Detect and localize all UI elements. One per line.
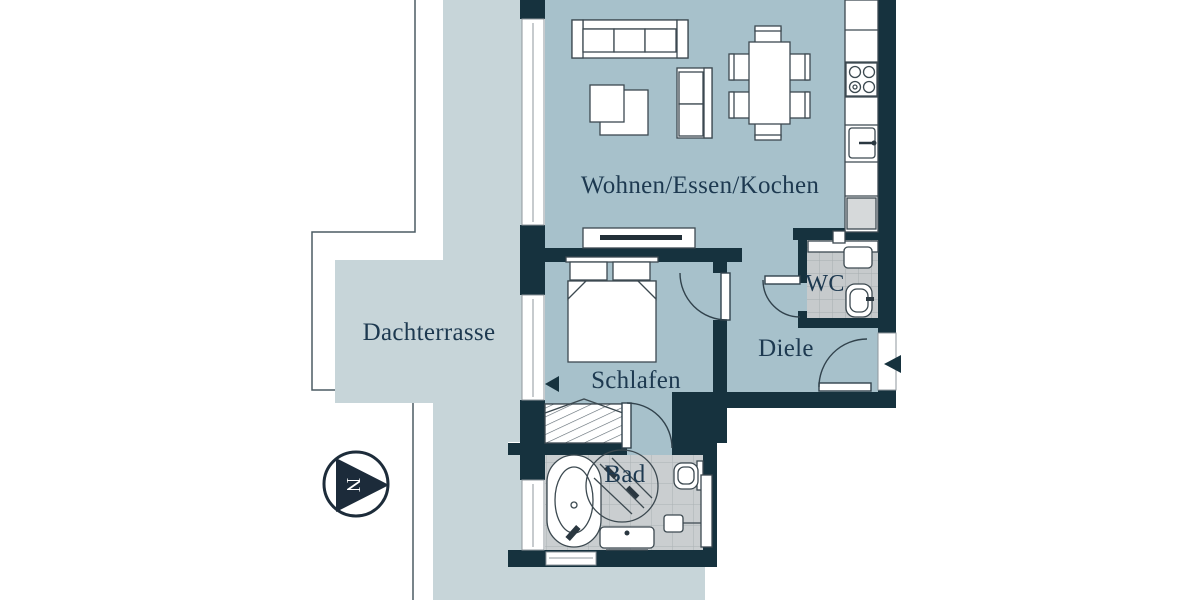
sofa-icon bbox=[572, 20, 688, 58]
kitchen-sink-icon bbox=[849, 128, 877, 158]
window bbox=[522, 480, 544, 550]
room-label-terrace: Dachterrasse bbox=[363, 318, 496, 348]
cooktop-icon bbox=[846, 63, 877, 96]
room-label-wc: WC bbox=[805, 269, 844, 299]
floorplan-canvas: N Wohnen/Essen/Kochen Dachterrasse Schla… bbox=[0, 0, 1200, 600]
sideboard-tv-icon bbox=[583, 228, 695, 248]
floorplan-drawing: N bbox=[0, 0, 1200, 600]
terrace-door-window bbox=[522, 295, 544, 400]
kitchen-counter bbox=[845, 0, 878, 232]
wardrobe-icon bbox=[545, 399, 623, 443]
room-label-living: Wohnen/Essen/Kochen bbox=[581, 171, 819, 201]
compass-north-label: N bbox=[342, 478, 364, 492]
window bbox=[546, 552, 596, 565]
room-label-hallway: Diele bbox=[758, 334, 814, 364]
wc-cabinet-icon bbox=[833, 231, 845, 243]
bath-door-gap bbox=[627, 443, 672, 455]
wc-sink-icon bbox=[844, 247, 872, 268]
wc-toilet-icon bbox=[846, 284, 874, 317]
vanity-icon bbox=[600, 527, 654, 550]
room-label-bathroom: Bad bbox=[604, 460, 645, 490]
room-label-bedroom: Schlafen bbox=[591, 366, 681, 396]
loveseat-icon bbox=[677, 68, 712, 138]
dishwasher-icon bbox=[847, 198, 876, 229]
window bbox=[522, 19, 544, 225]
passage-floor bbox=[740, 240, 798, 264]
toilet-icon bbox=[674, 461, 703, 490]
north-arrow-icon: N bbox=[324, 452, 389, 516]
bathtub-icon bbox=[547, 455, 601, 547]
shower-screen-icon bbox=[701, 475, 712, 547]
